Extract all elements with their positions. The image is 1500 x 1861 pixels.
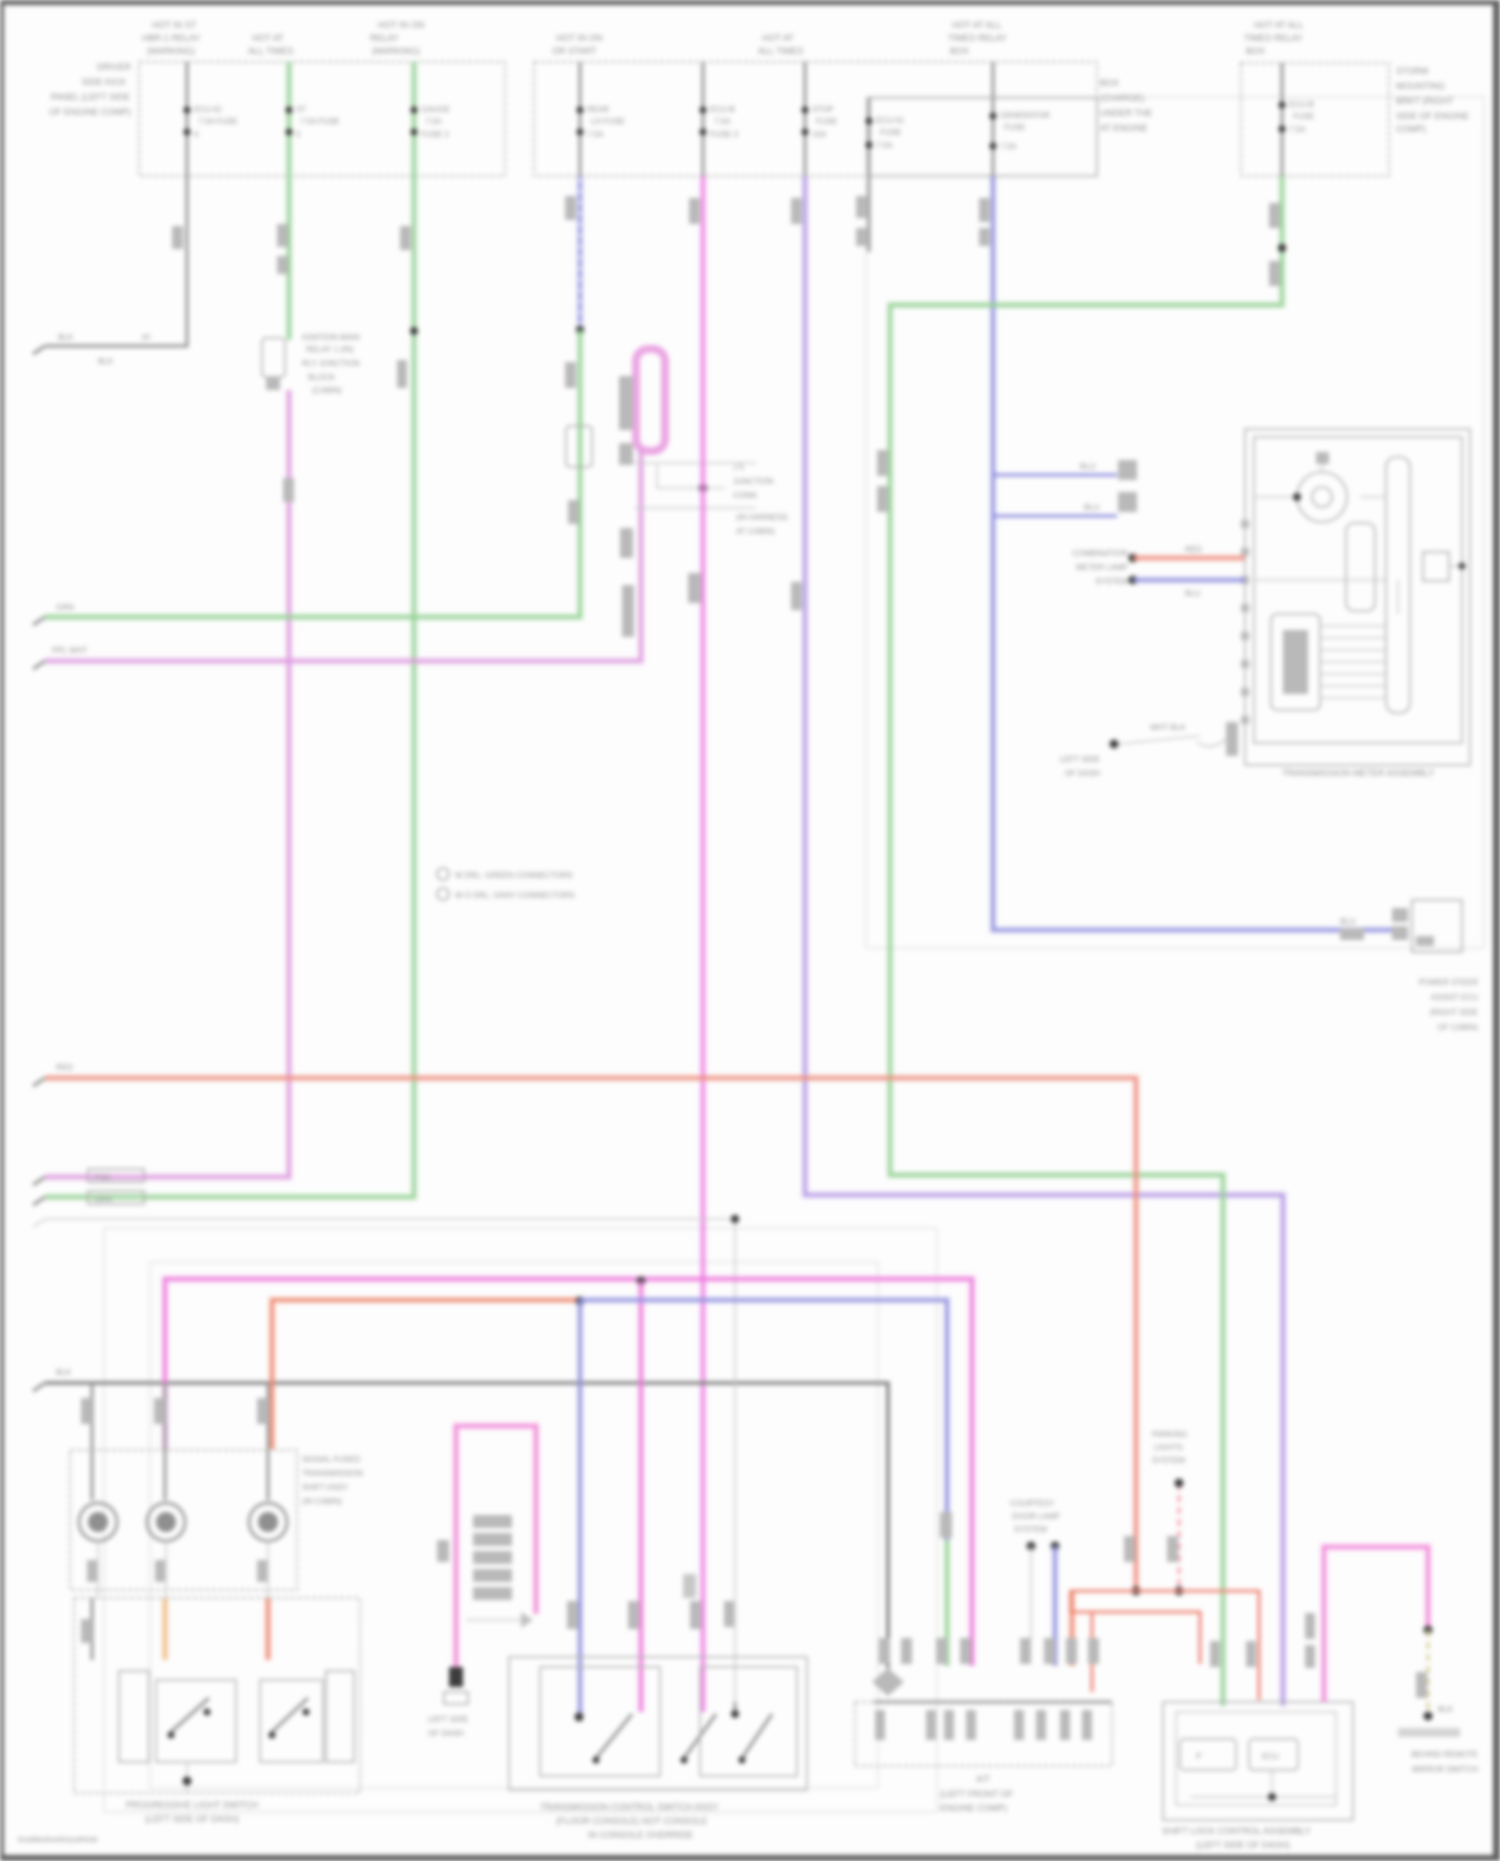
svg-text:COMP): COMP): [1396, 124, 1426, 134]
svg-text:LEFT SIDE: LEFT SIDE: [1060, 755, 1100, 764]
svg-text:SHIFT LOCK CONTROL ASSEMBLY: SHIFT LOCK CONTROL ASSEMBLY: [1162, 1826, 1311, 1836]
svg-text:BOX: BOX: [1246, 46, 1265, 56]
svg-text:ECU-B: ECU-B: [1289, 100, 1314, 109]
svg-text:ECU: ECU: [1262, 1752, 1279, 1761]
svg-text:FUSE 2: FUSE 2: [421, 130, 450, 139]
svg-text:FUSE: FUSE: [1004, 123, 1025, 132]
svg-text:HBR-1 RELAY: HBR-1 RELAY: [142, 33, 200, 43]
svg-text:PNK: PNK: [94, 1173, 111, 1182]
svg-text:TRANSMISSION METER ASSEMBLY: TRANSMISSION METER ASSEMBLY: [1282, 768, 1434, 778]
svg-text:FUSE: FUSE: [880, 128, 901, 137]
svg-text:RED: RED: [56, 1063, 73, 1072]
svg-text:7.5A: 7.5A: [1000, 142, 1017, 151]
svg-text:RELAY: RELAY: [370, 33, 399, 43]
svg-text:(IN HARNESS: (IN HARNESS: [736, 513, 788, 522]
svg-text:SIGNAL FUSED: SIGNAL FUSED: [302, 1455, 361, 1464]
svg-text:LIGHTS: LIGHTS: [1154, 1443, 1183, 1452]
svg-text:BLK: BLK: [98, 357, 114, 366]
svg-text:IH: IH: [142, 333, 150, 342]
svg-text:UNDER THE: UNDER THE: [1100, 108, 1152, 118]
svg-text:OF ENGINE COMP): OF ENGINE COMP): [49, 107, 131, 117]
svg-text:TIMES RELAY: TIMES RELAY: [1244, 33, 1303, 43]
svg-text:RLY JUNCTION: RLY JUNCTION: [302, 359, 360, 368]
svg-text:ECU-B: ECU-B: [710, 105, 735, 114]
svg-text:WHT BLK: WHT BLK: [1150, 723, 1186, 732]
svg-text:STORM: STORM: [1396, 66, 1428, 76]
svg-text:7.5A FUSE: 7.5A FUSE: [300, 117, 340, 126]
svg-text:GAUGE: GAUGE: [421, 105, 450, 114]
svg-text:CONN: CONN: [733, 491, 757, 500]
svg-text:SYSTEM: SYSTEM: [1152, 1456, 1185, 1465]
svg-text:7.5A: 7.5A: [876, 141, 893, 150]
svg-text:FUSE: FUSE: [1293, 112, 1314, 121]
svg-text:OF DASH: OF DASH: [1064, 769, 1100, 778]
svg-text:LEFT SIDE: LEFT SIDE: [428, 1715, 468, 1724]
svg-text:W O DRL: GRAY CONNECTORS: W O DRL: GRAY CONNECTORS: [455, 891, 575, 900]
svg-text:BLK: BLK: [56, 1368, 72, 1377]
svg-text:SHIFT ASSY: SHIFT ASSY: [302, 1483, 349, 1492]
svg-text:FUSE 3: FUSE 3: [710, 130, 739, 139]
svg-text:TIMES RELAY: TIMES RELAY: [948, 33, 1007, 43]
svg-text:J 5: J 5: [733, 463, 744, 472]
svg-text:STOP: STOP: [812, 105, 834, 114]
svg-text:BEHIND REMOTE: BEHIND REMOTE: [1411, 1750, 1478, 1759]
svg-text:REAR: REAR: [587, 105, 609, 114]
svg-text:GRN: GRN: [94, 1195, 112, 1204]
svg-text:BLU: BLU: [1084, 503, 1100, 512]
svg-text:troubleshootmyvehicle: troubleshootmyvehicle: [18, 1835, 98, 1844]
svg-text:BOX: BOX: [1100, 78, 1119, 88]
svg-text:7.5A: 7.5A: [714, 117, 731, 126]
svg-text:BOX: BOX: [950, 46, 969, 56]
svg-text:(CABIN): (CABIN): [312, 386, 342, 395]
svg-text:AT CABIN): AT CABIN): [736, 527, 775, 536]
svg-text:HOT AT ALL: HOT AT ALL: [952, 20, 1002, 30]
svg-text:(IN CABIN): (IN CABIN): [302, 1497, 342, 1506]
svg-text:PARKING: PARKING: [1152, 1430, 1187, 1439]
svg-text:(FLOOR CONSOLE) NOT CONSOLE: (FLOOR CONSOLE) NOT CONSOLE: [556, 1816, 707, 1826]
svg-text:(LEFT FRONT OF: (LEFT FRONT OF: [940, 1789, 1014, 1799]
svg-text:ALL TIMES: ALL TIMES: [758, 46, 804, 56]
svg-text:ST: ST: [296, 105, 306, 114]
svg-text:ECU-IG: ECU-IG: [876, 116, 904, 125]
svg-text:7.5A: 7.5A: [425, 117, 442, 126]
svg-text:4: 4: [194, 130, 199, 139]
svg-text:HOT IN ST: HOT IN ST: [152, 20, 197, 30]
svg-text:MIRROR SWITCH: MIRROR SWITCH: [1412, 1765, 1478, 1774]
svg-text:OF CABIN): OF CABIN): [1438, 1023, 1479, 1032]
svg-text:TRANSMISSION CONTROL SWITCH AS: TRANSMISSION CONTROL SWITCH ASSY: [540, 1802, 719, 1812]
svg-text:ECU-IG: ECU-IG: [194, 105, 222, 114]
svg-text:HOT IN ON: HOT IN ON: [556, 33, 602, 43]
svg-text:PANEL (LEFT SIDE: PANEL (LEFT SIDE: [51, 92, 130, 102]
svg-text:ENGINE COMP): ENGINE COMP): [940, 1803, 1007, 1813]
svg-text:HOT AT: HOT AT: [762, 33, 794, 43]
svg-text:(RIGHT SIDE: (RIGHT SIDE: [1430, 1008, 1478, 1017]
svg-text:BLU: BLU: [1340, 917, 1356, 926]
svg-text:HOT AT: HOT AT: [252, 33, 284, 43]
svg-text:DRIVER: DRIVER: [97, 62, 132, 72]
svg-text:BLK: BLK: [58, 333, 74, 342]
svg-text:(CHARGE): (CHARGE): [1100, 93, 1145, 103]
svg-text:OR START: OR START: [552, 46, 597, 56]
svg-text:JUNCTION: JUNCTION: [733, 477, 774, 486]
svg-text:TRANSMISSION: TRANSMISSION: [302, 1469, 363, 1478]
svg-text:SYSTEM: SYSTEM: [1095, 577, 1128, 586]
svg-text:7.5A: 7.5A: [587, 130, 604, 139]
svg-text:(MARKING): (MARKING): [372, 46, 420, 56]
svg-text:MOUNTING: MOUNTING: [1396, 81, 1445, 91]
svg-text:IN CONSOLE OVERRIDE: IN CONSOLE OVERRIDE: [588, 1830, 693, 1840]
svg-text:BRKT (RIGHT: BRKT (RIGHT: [1396, 96, 1454, 106]
svg-text:AT ENGINE: AT ENGINE: [1100, 123, 1148, 133]
svg-text:PPL WHT: PPL WHT: [52, 646, 87, 655]
svg-text:FUSE: FUSE: [816, 117, 837, 126]
svg-text:BLU: BLU: [1185, 589, 1201, 598]
svg-text:PROGRESSIVE LIGHT SWITCH: PROGRESSIVE LIGHT SWITCH: [126, 1800, 258, 1810]
svg-text:SIDE OF ENGINE: SIDE OF ENGINE: [1396, 111, 1469, 121]
svg-text:IGNITION MAIN: IGNITION MAIN: [302, 333, 360, 342]
svg-text:P: P: [1196, 1752, 1201, 1761]
svg-text:BLOCK: BLOCK: [308, 373, 336, 382]
svg-text:ALL TIMES: ALL TIMES: [248, 46, 294, 56]
svg-text:ASSIST ECU: ASSIST ECU: [1431, 993, 1479, 1002]
svg-text:(LEFT SIDE OF DASH): (LEFT SIDE OF DASH): [1196, 1840, 1290, 1850]
svg-text:GRN: GRN: [56, 603, 74, 612]
svg-text:OF DASH: OF DASH: [428, 1729, 464, 1738]
svg-text:BLU: BLU: [1080, 462, 1096, 471]
svg-text:LH FUSE: LH FUSE: [591, 117, 625, 126]
svg-text:RELAY 1 (IN): RELAY 1 (IN): [306, 345, 354, 354]
svg-text:POWER STEER: POWER STEER: [1419, 978, 1478, 987]
svg-text:BLK: BLK: [1438, 1705, 1454, 1714]
svg-text:A/T: A/T: [976, 1774, 991, 1784]
svg-text:(LEFT SIDE OF DASH): (LEFT SIDE OF DASH): [145, 1814, 239, 1824]
svg-text:5: 5: [296, 130, 301, 139]
svg-text:COMBINATION: COMBINATION: [1072, 549, 1128, 558]
svg-text:SIDE KICK: SIDE KICK: [81, 77, 126, 87]
svg-text:HOT AT ALL: HOT AT ALL: [1254, 20, 1304, 30]
svg-text:W DRL: GREEN CONNECTORS: W DRL: GREEN CONNECTORS: [455, 871, 573, 880]
svg-text:15A: 15A: [812, 130, 827, 139]
svg-text:7.5A: 7.5A: [1289, 125, 1306, 134]
svg-text:COURTESY: COURTESY: [1010, 1499, 1055, 1508]
svg-text:METER LAMP: METER LAMP: [1076, 563, 1128, 572]
svg-text:SYSTEM: SYSTEM: [1014, 1525, 1047, 1534]
svg-text:(MARKING): (MARKING): [147, 46, 195, 56]
svg-text:HOT IN ON: HOT IN ON: [378, 20, 424, 30]
svg-text:RED: RED: [1185, 545, 1202, 554]
svg-text:DOOR LAMP: DOOR LAMP: [1012, 1512, 1060, 1521]
svg-text:GENERATOR: GENERATOR: [1000, 111, 1050, 120]
svg-text:7.5A FUSE: 7.5A FUSE: [198, 117, 238, 126]
